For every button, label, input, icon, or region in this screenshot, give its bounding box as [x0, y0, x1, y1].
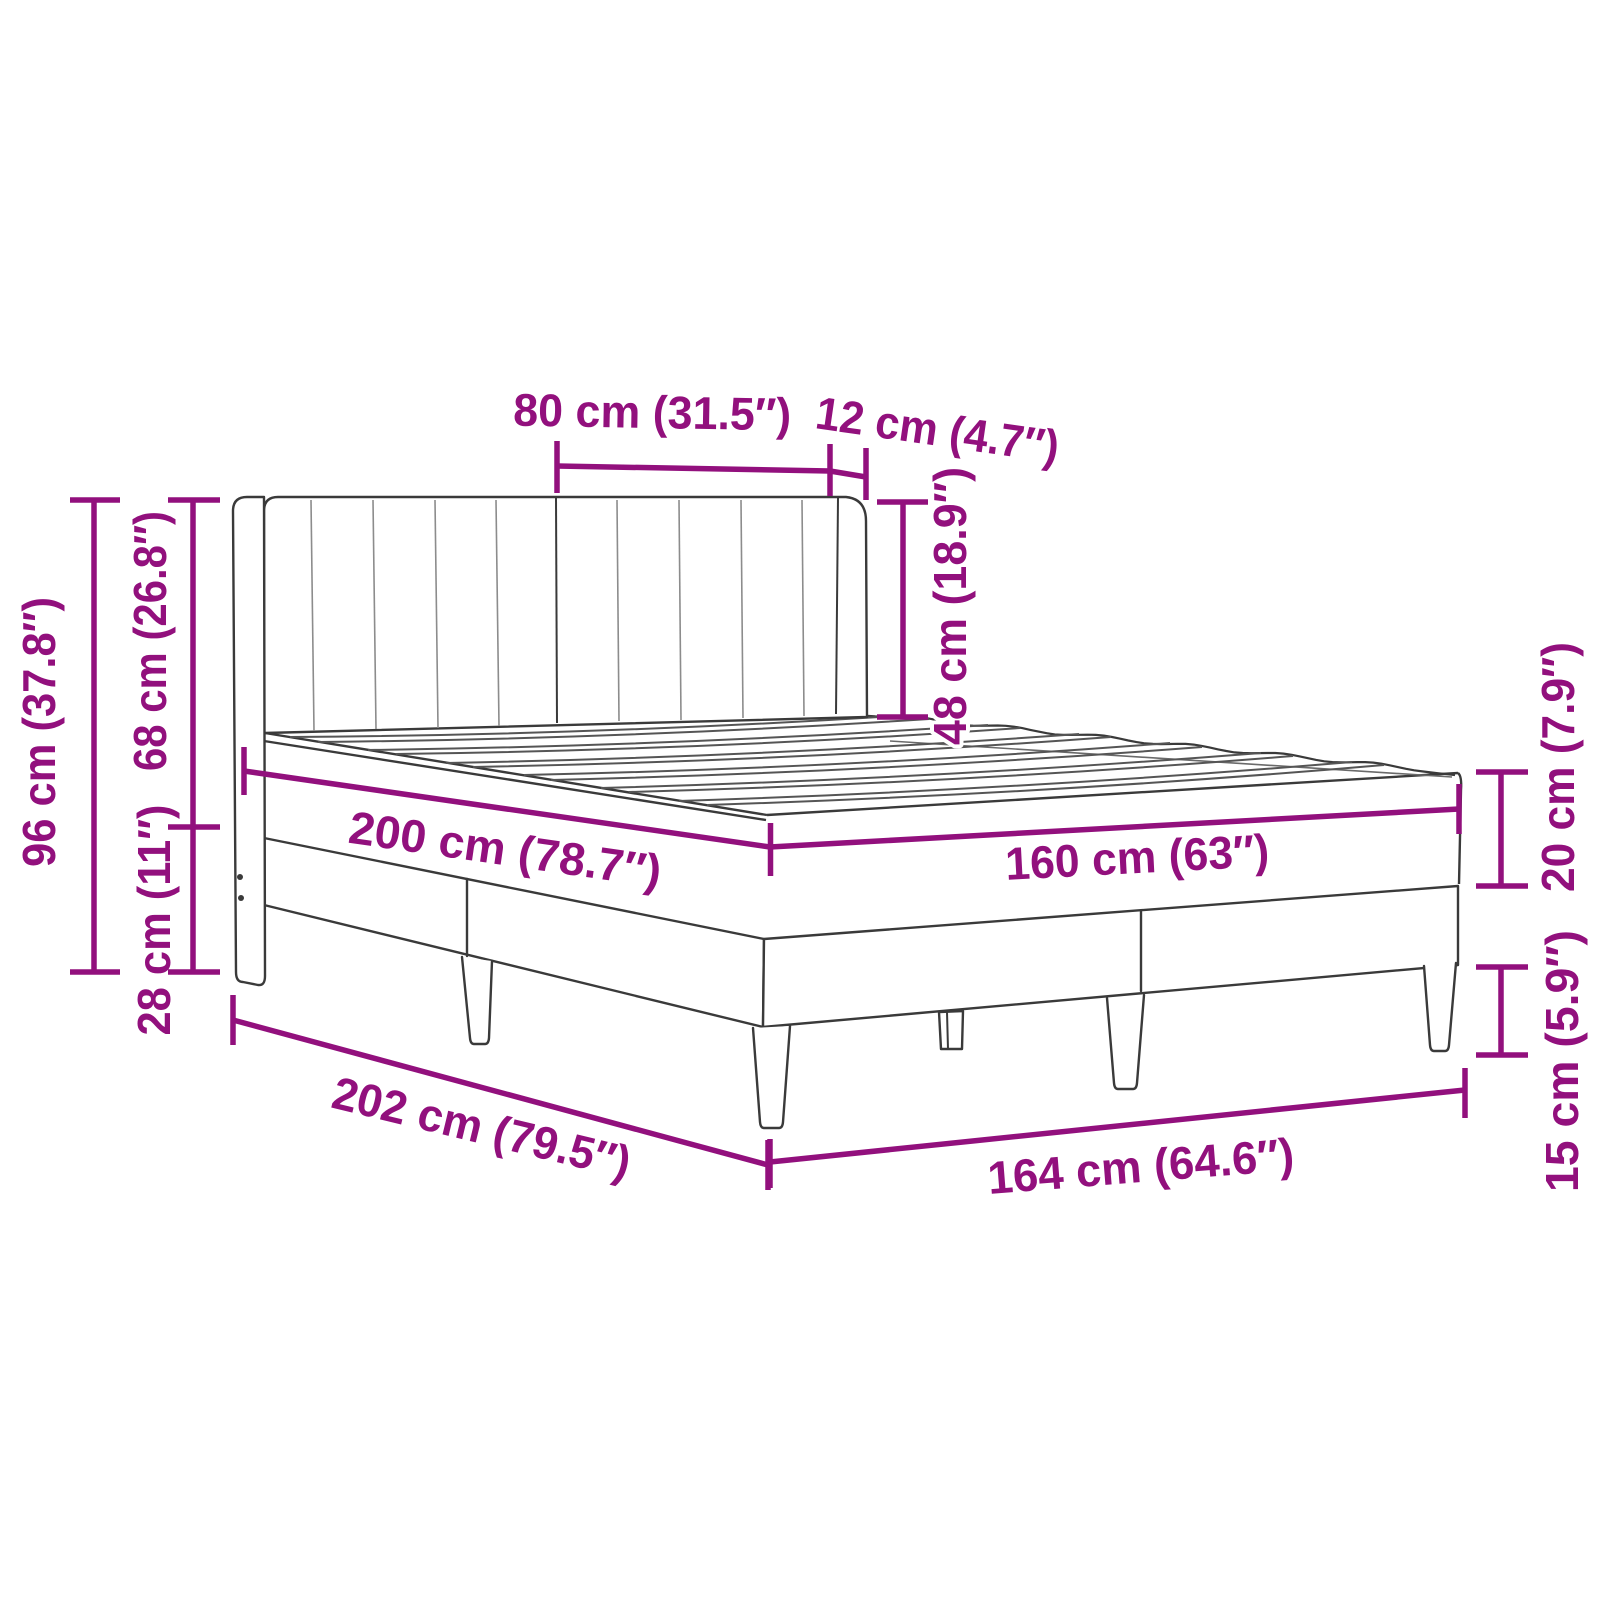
svg-text:15 cm (5.9″): 15 cm (5.9″): [1536, 930, 1588, 1192]
svg-text:96 cm (37.8″): 96 cm (37.8″): [13, 597, 65, 867]
svg-text:28 cm (11″): 28 cm (11″): [128, 805, 180, 1036]
svg-text:48 cm (18.9″): 48 cm (18.9″): [924, 467, 976, 745]
svg-text:80 cm (31.5″): 80 cm (31.5″): [513, 384, 792, 441]
svg-text:20 cm (7.9″): 20 cm (7.9″): [1532, 642, 1584, 892]
svg-text:68 cm (26.8″): 68 cm (26.8″): [124, 511, 176, 771]
